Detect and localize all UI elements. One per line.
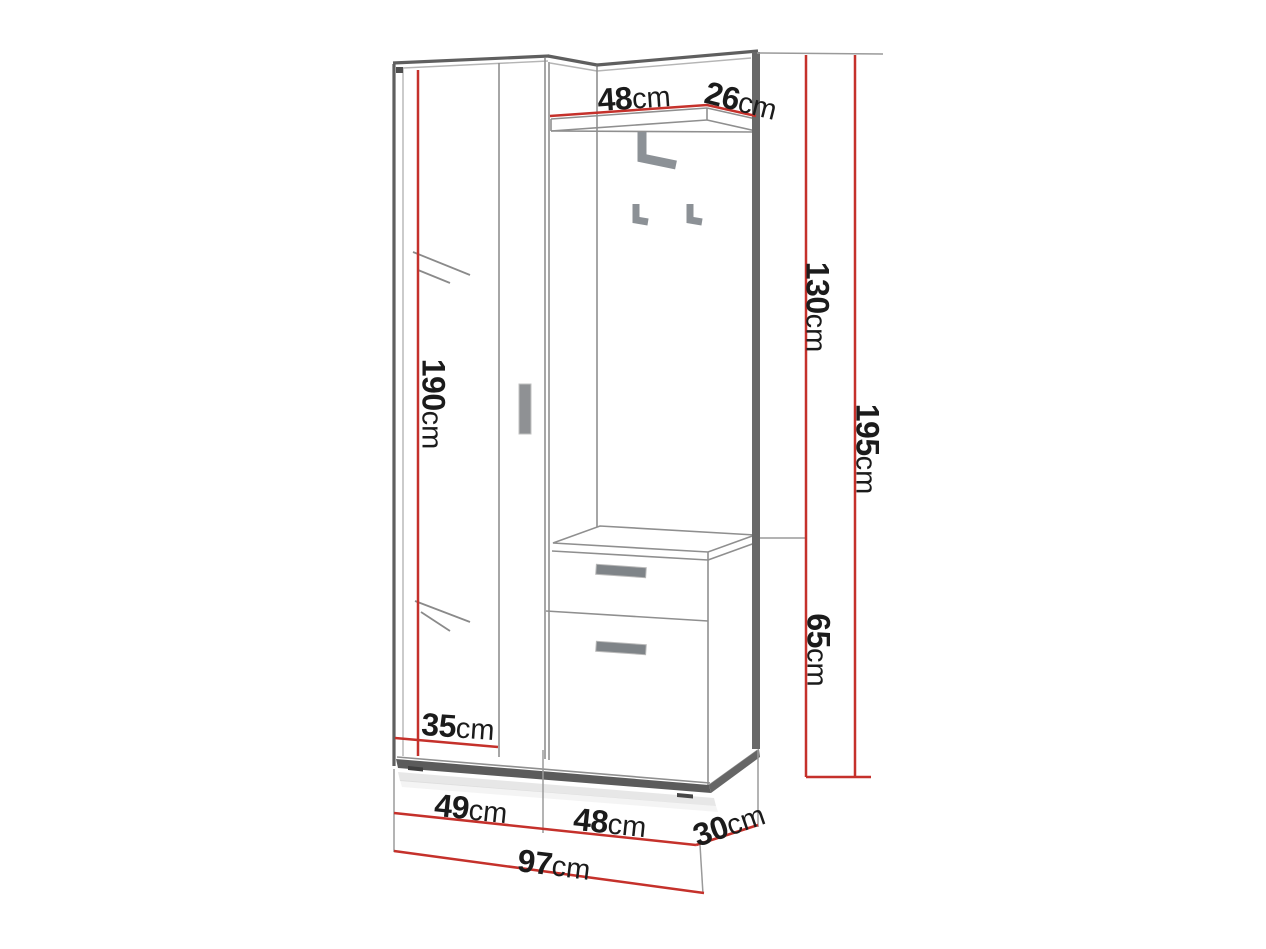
dimension-value: 48 [572, 801, 610, 840]
dimension-label-cabinet-width: 48cm [572, 803, 648, 843]
furniture-line-drawing [0, 0, 1266, 949]
coat-hooks [636, 132, 702, 222]
dimension-unit: cm [800, 314, 832, 353]
flap-door-handle [596, 641, 647, 654]
dimension-label-upper-height: 130cm [801, 262, 834, 353]
dimension-value: 65 [801, 613, 837, 648]
dimension-value: 97 [516, 842, 555, 882]
dimension-unit: cm [550, 850, 592, 886]
dimension-value: 190 [416, 359, 452, 411]
dimension-value: 49 [433, 787, 471, 826]
coat-hook-small-right-icon [690, 204, 702, 222]
inner-highlight-lines [403, 58, 751, 756]
dimension-unit: cm [850, 456, 882, 495]
structural-lines [397, 58, 758, 786]
dimension-diagram: 48cm 26cm 130cm 195cm 190cm 65cm 35cm 49… [0, 0, 1266, 949]
rear-panel-top-edge [597, 51, 758, 65]
dimension-value: 130 [800, 262, 836, 314]
dimension-value: 48 [596, 80, 633, 118]
dimension-label-wardrobe-height: 190cm [417, 359, 450, 450]
dimension-unit: cm [467, 794, 509, 830]
dimension-tick-mark [396, 67, 403, 73]
dimension-label-total-height: 195cm [851, 404, 884, 495]
dimension-unit: cm [416, 411, 448, 450]
coat-hook-small-left-icon [636, 204, 648, 222]
dimension-label-wardrobe-width: 49cm [433, 789, 509, 829]
drawer-handle [596, 564, 647, 577]
wardrobe-door-handle [519, 384, 531, 434]
dimension-label-shelf-width: 48cm [596, 79, 671, 117]
handles [519, 384, 646, 655]
dimension-unit: cm [455, 712, 496, 747]
dimension-unit: cm [606, 808, 648, 844]
dimension-label-mirror-width: 35cm [420, 708, 495, 746]
shoe-cabinet [546, 526, 758, 786]
dimension-label-cabinet-height: 65cm [802, 613, 835, 686]
dimension-value: 35 [420, 706, 457, 744]
coat-hook-large-icon [642, 132, 676, 165]
drawer-divider-line [546, 611, 708, 621]
dimension-unit: cm [631, 81, 672, 116]
rear-panel-right-edge [752, 52, 760, 749]
dimension-value: 195 [850, 404, 886, 456]
dimension-unit: cm [801, 648, 833, 687]
